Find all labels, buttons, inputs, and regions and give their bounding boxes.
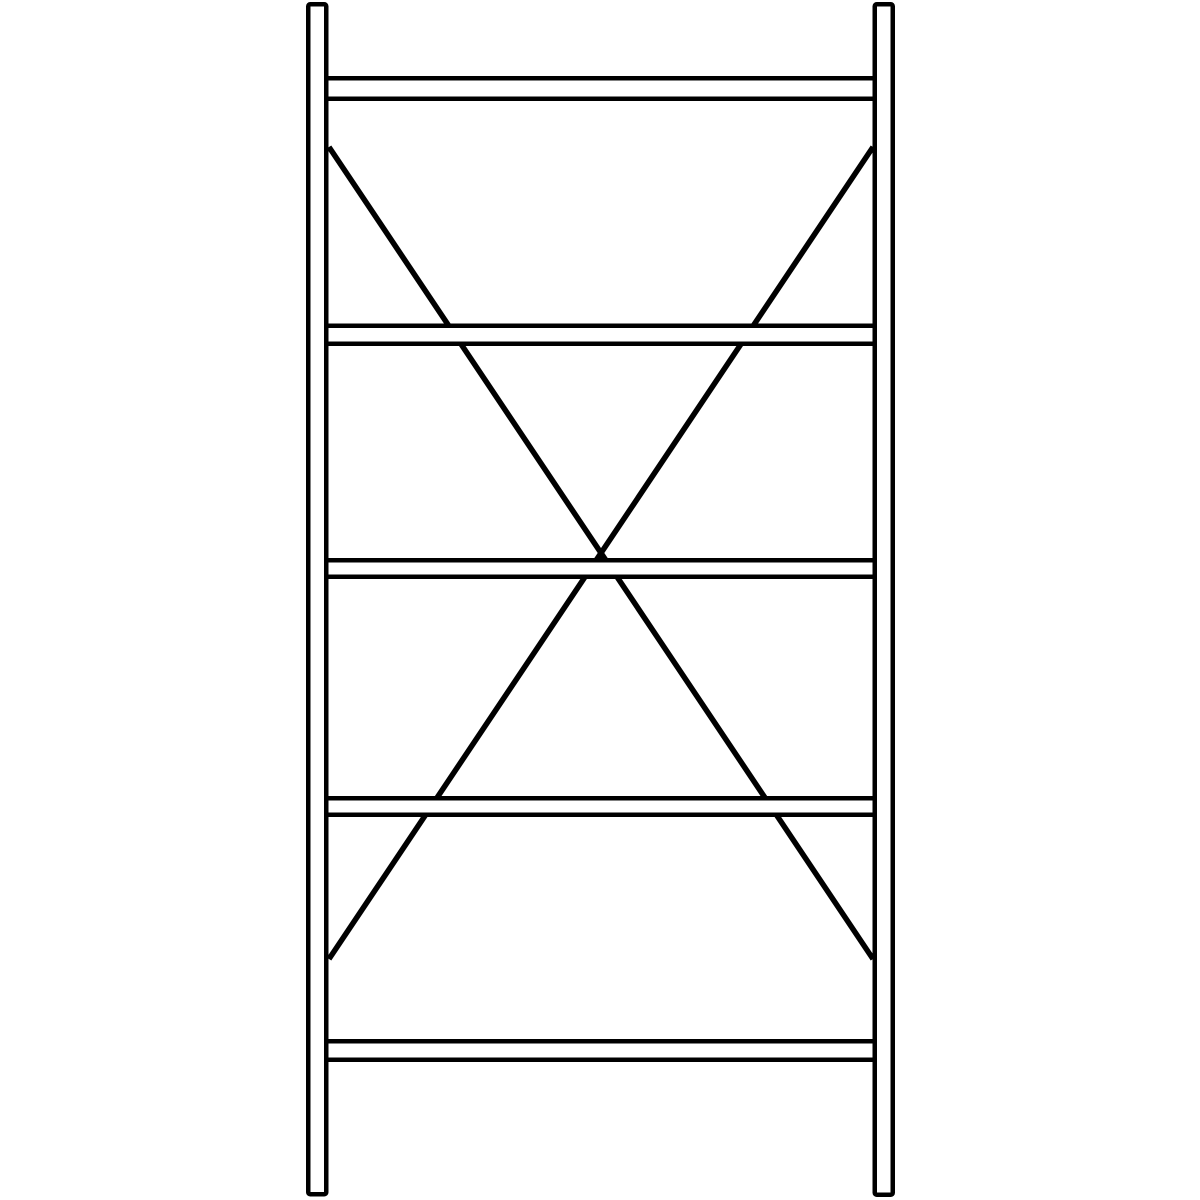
shelf-5 xyxy=(324,1041,878,1060)
shelf-4 xyxy=(324,798,878,815)
shelf-1 xyxy=(324,78,878,99)
shelf-3 xyxy=(324,560,878,577)
shelf-2 xyxy=(324,326,878,344)
product-drawing-canvas xyxy=(0,0,1200,1200)
left-upright xyxy=(308,4,326,1194)
shelf-unit-line-drawing xyxy=(0,0,1200,1200)
right-upright xyxy=(875,4,893,1195)
